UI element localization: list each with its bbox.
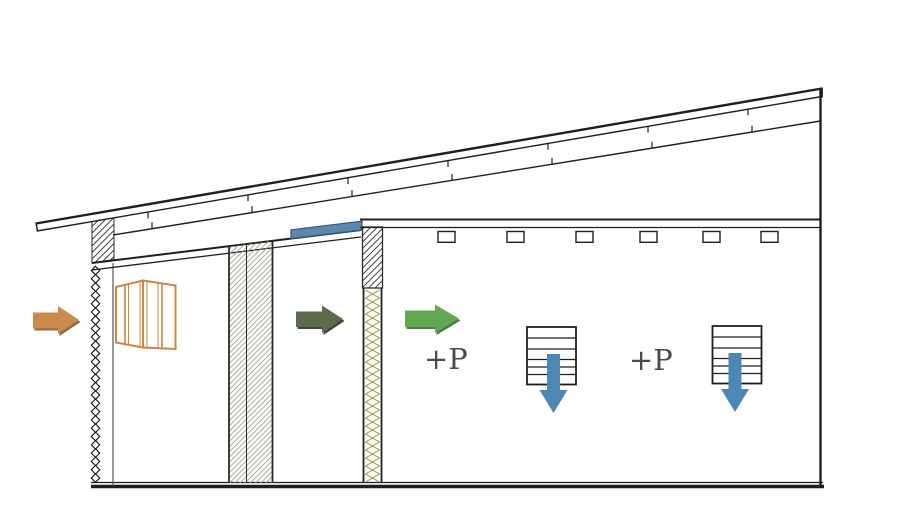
pressure-label-1: +P bbox=[424, 342, 468, 376]
joist-box bbox=[438, 232, 455, 243]
mesh-link bbox=[91, 275, 99, 284]
roof-deck-bottom-line bbox=[37, 97, 822, 232]
mesh-link bbox=[91, 358, 99, 367]
roof-deck-top-line bbox=[36, 89, 822, 224]
mesh-screen-chain bbox=[91, 266, 99, 482]
joist-box bbox=[507, 232, 524, 243]
mesh-link bbox=[91, 299, 99, 308]
blue-vent-band bbox=[291, 221, 362, 238]
mesh-link bbox=[91, 416, 99, 425]
mesh-link bbox=[91, 291, 99, 300]
mesh-link bbox=[91, 449, 99, 458]
outdoor-air-arrow bbox=[33, 306, 81, 336]
left-wall-head-hatch bbox=[92, 218, 114, 263]
mesh-link bbox=[91, 391, 99, 400]
joist-box bbox=[640, 232, 657, 243]
right-room-ceiling bbox=[360, 220, 821, 228]
pressure-label-2: +P bbox=[629, 343, 673, 377]
insulation-zigzag bbox=[366, 290, 380, 482]
purlin-joint-ticks bbox=[148, 109, 752, 229]
window-left-leaf bbox=[116, 281, 143, 348]
mono-pitch-roof bbox=[36, 88, 822, 236]
mesh-link bbox=[91, 399, 99, 408]
window-right-leaf bbox=[143, 281, 176, 350]
mesh-link bbox=[91, 324, 99, 333]
mesh-link bbox=[91, 457, 99, 466]
mesh-link bbox=[91, 441, 99, 450]
building-section-diagram: +P +P bbox=[0, 0, 904, 508]
folding-window bbox=[116, 281, 176, 350]
mesh-link bbox=[91, 341, 99, 350]
mesh-link bbox=[91, 333, 99, 342]
floor-slab bbox=[91, 483, 824, 487]
mesh-link bbox=[91, 374, 99, 383]
middle-wall-hatch-fill bbox=[229, 241, 273, 483]
section-drawing: +P +P bbox=[0, 0, 904, 508]
mesh-link bbox=[91, 465, 99, 474]
mesh-link bbox=[91, 474, 99, 483]
left-ceiling-bottom-line bbox=[92, 237, 361, 270]
joist-box bbox=[576, 232, 593, 243]
insulated-wall-head-hatch bbox=[363, 227, 383, 288]
supply-air-arrow bbox=[405, 305, 461, 336]
insulation-zigzag-line bbox=[366, 290, 380, 482]
mesh-link bbox=[91, 283, 99, 292]
mesh-link bbox=[91, 308, 99, 317]
left-room-sloped-ceiling bbox=[92, 230, 361, 270]
joist-box bbox=[703, 232, 720, 243]
mesh-link bbox=[91, 407, 99, 416]
ceiling-joist-boxes bbox=[438, 232, 778, 243]
mesh-link bbox=[91, 424, 99, 433]
mesh-link bbox=[91, 316, 99, 325]
insulation-zigzag-line bbox=[366, 290, 380, 482]
purlin-underside-line bbox=[113, 121, 821, 235]
mesh-link bbox=[91, 382, 99, 391]
insulated-partition-wall bbox=[363, 227, 383, 483]
middle-partition-wall bbox=[229, 241, 273, 483]
cavity-air-arrow bbox=[296, 306, 345, 336]
joist-box bbox=[761, 232, 778, 243]
mesh-link bbox=[91, 349, 99, 358]
mesh-link bbox=[91, 366, 99, 375]
mesh-link bbox=[91, 432, 99, 441]
left-exterior-wall bbox=[91, 218, 114, 486]
